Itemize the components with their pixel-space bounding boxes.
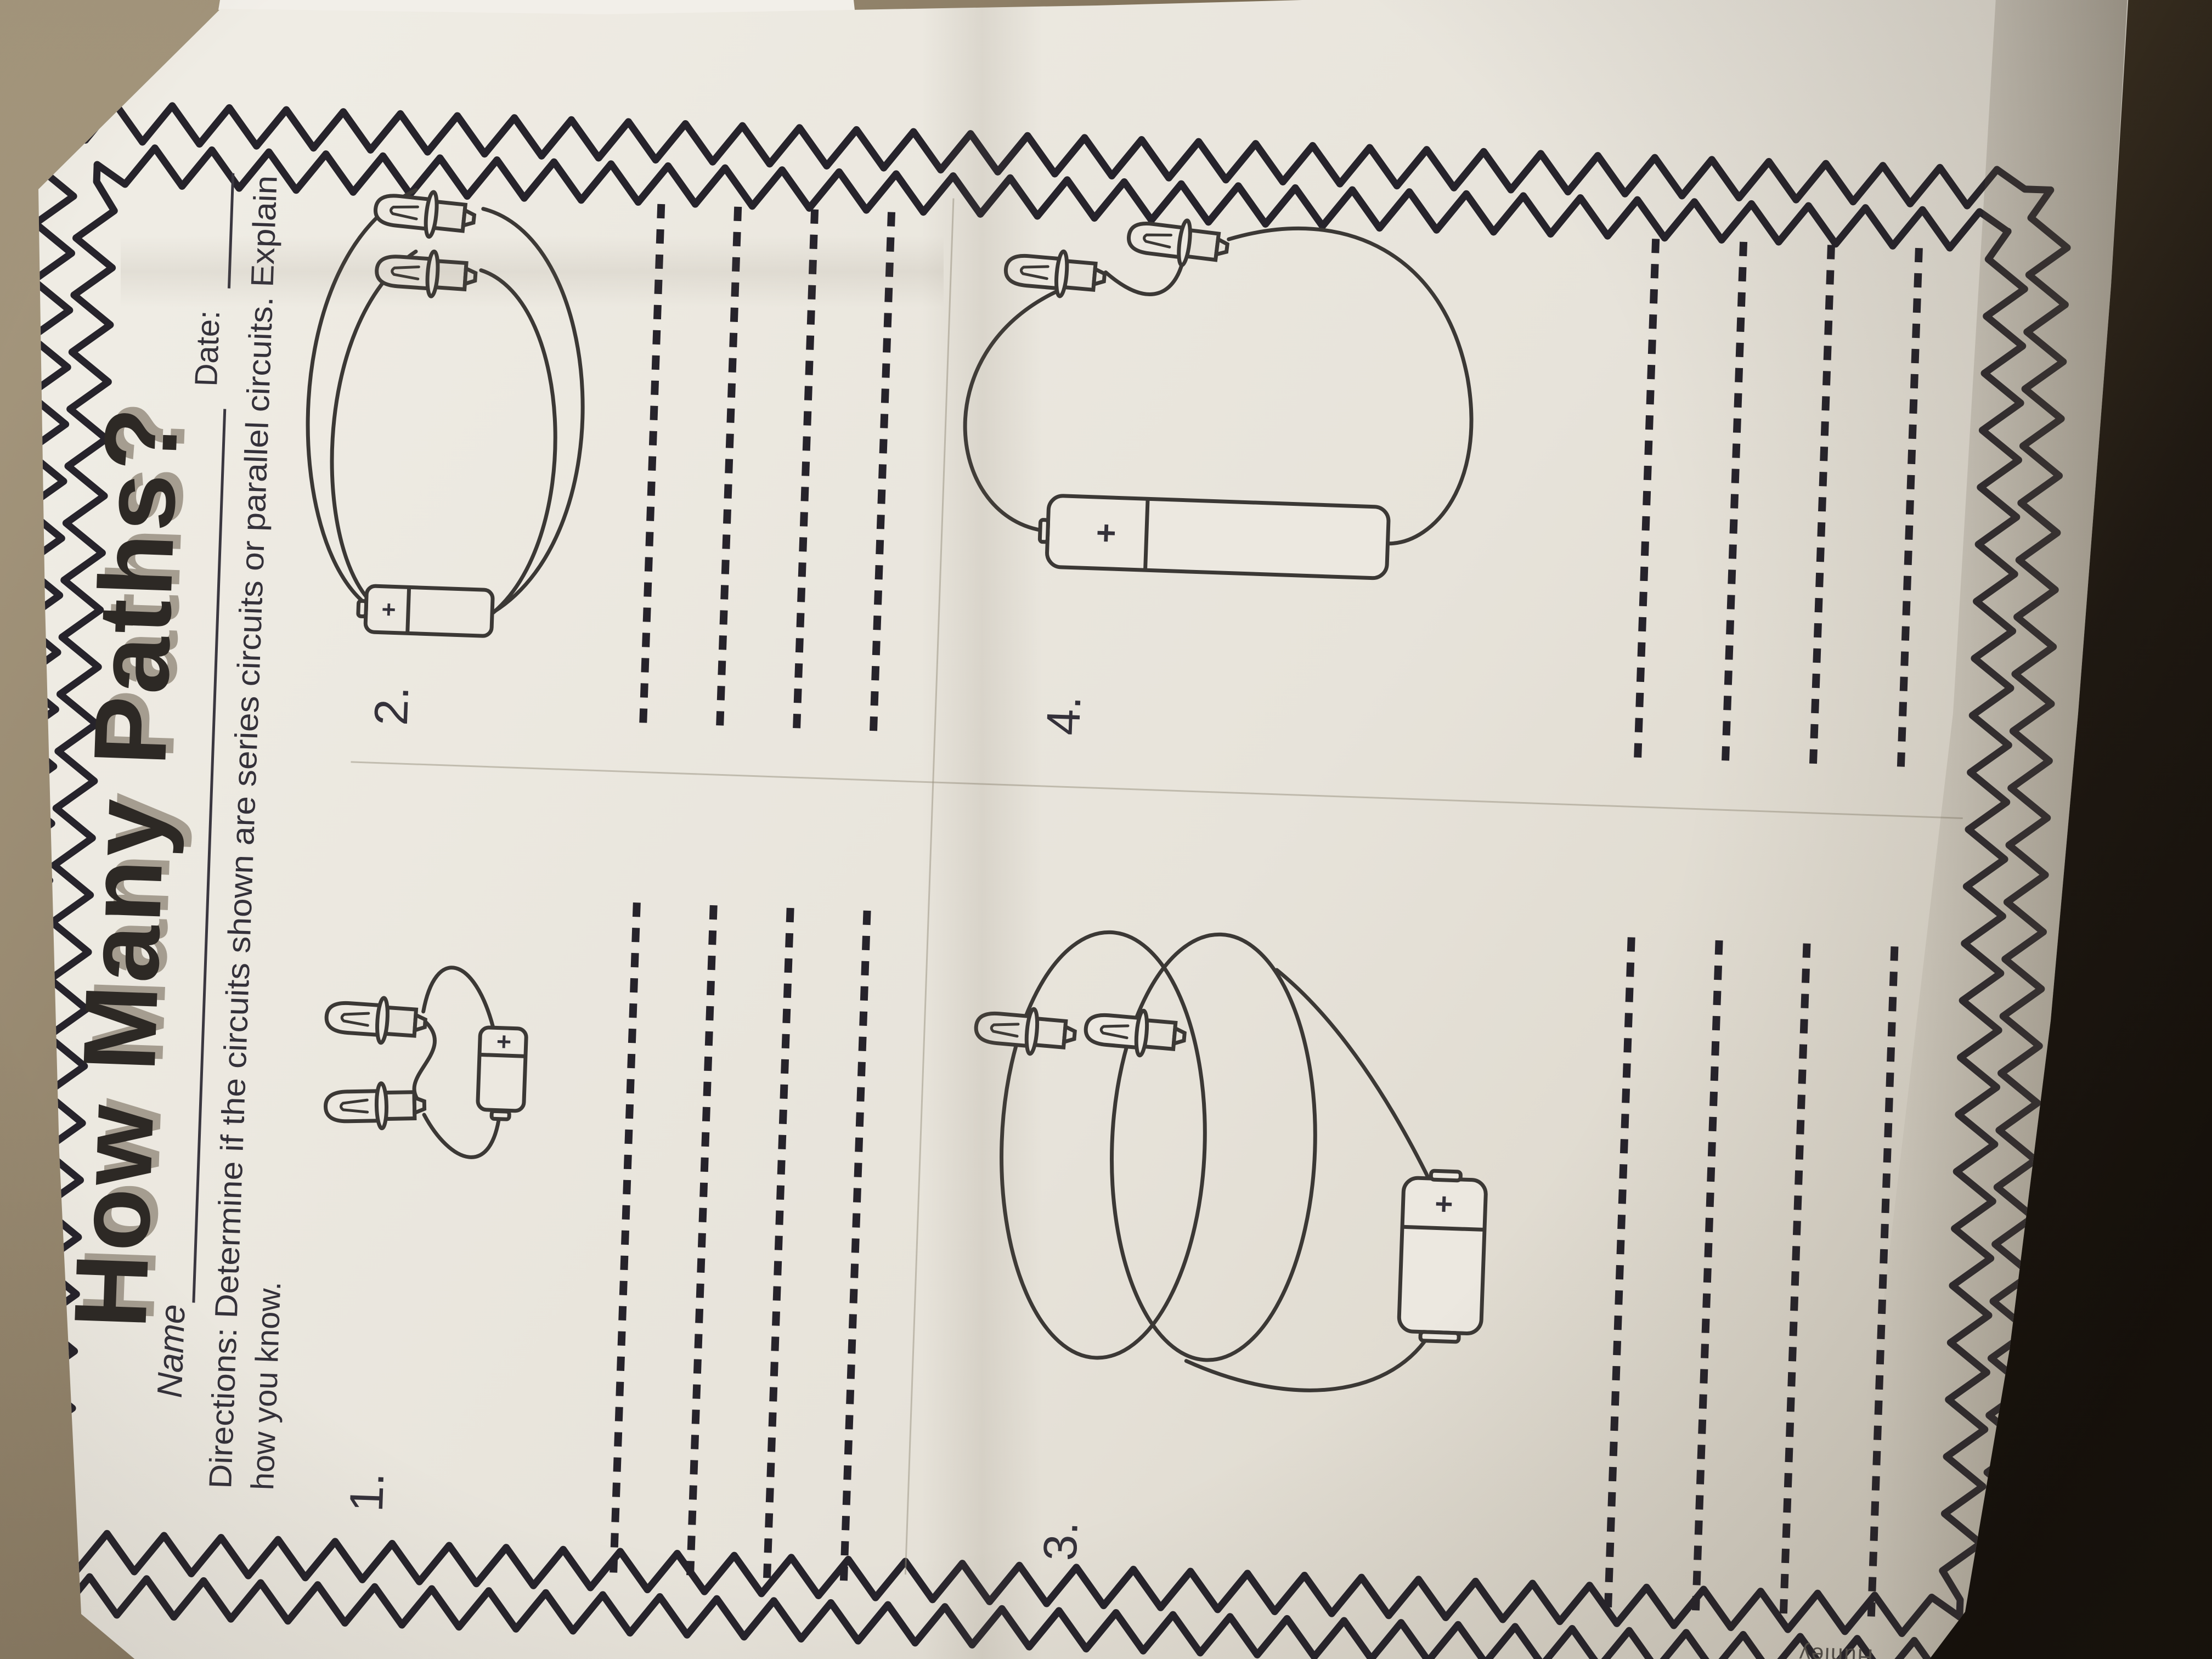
photo-of-worksheet: How Many Paths? How Many Paths? Name Dat… <box>0 0 2212 1659</box>
worksheet-photo: How Many Paths? How Many Paths? Name Dat… <box>0 0 2212 1659</box>
photo-vignette <box>0 0 2212 1659</box>
